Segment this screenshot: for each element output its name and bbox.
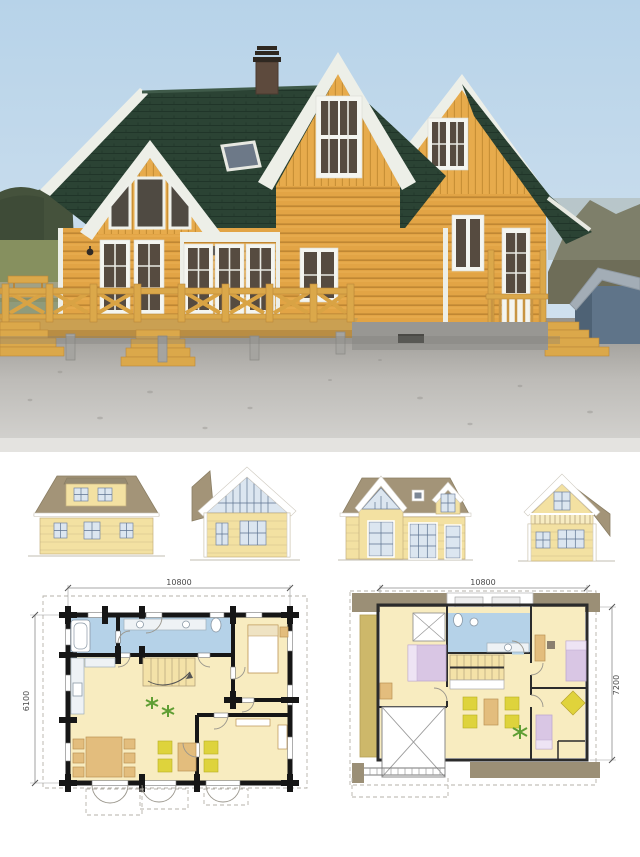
right-wing-window [452,215,484,271]
rear-elevation [28,476,165,556]
bay-french-doors [180,232,280,318]
left-gable-elevation [190,467,300,560]
gable-windows [216,521,266,545]
ground-depth-label: 6100 [22,691,31,711]
roof-skylight [222,142,260,170]
gravel-foreground [0,438,640,452]
upper-width-label: 10800 [470,578,495,587]
stairs-ground [143,658,195,686]
roof-stub [352,763,364,783]
upper-depth-label: 7200 [612,675,621,695]
front-elevation [338,476,473,560]
roof-slope-strip [360,615,378,757]
ground-dim-width: 10800 [65,578,293,611]
gable-tall-window [316,96,362,178]
side-door [445,525,461,559]
void-open-to-below [382,707,445,777]
roof-area-bottom [470,762,600,778]
stairs-upper [450,655,504,689]
rear-windows [54,522,133,539]
lower-windows [536,530,584,548]
floor-plans-svg: 10800 6100 [0,575,640,857]
upper-dim-depth: 7200 [590,604,621,763]
house-photo [0,0,640,452]
upper-closet [413,613,445,641]
floor-plan-upper: 10800 7200 [350,578,621,797]
house-design-sheet: 10800 6100 [0,0,640,857]
dining-set [73,737,135,777]
elevations-svg [0,452,640,575]
right-wing-gable-window [428,118,468,170]
balcony-railing [530,514,594,524]
chimney [253,46,281,94]
center-french-doors [409,523,437,559]
right-gable-elevation [518,474,615,561]
elevations-row [0,452,640,575]
house-photo-svg [0,0,640,452]
ground-width-label: 10800 [166,578,191,587]
house-shadow [0,336,560,344]
floor-plan-ground: 10800 6100 [22,578,307,815]
floor-plans-row: 10800 6100 [0,575,640,857]
